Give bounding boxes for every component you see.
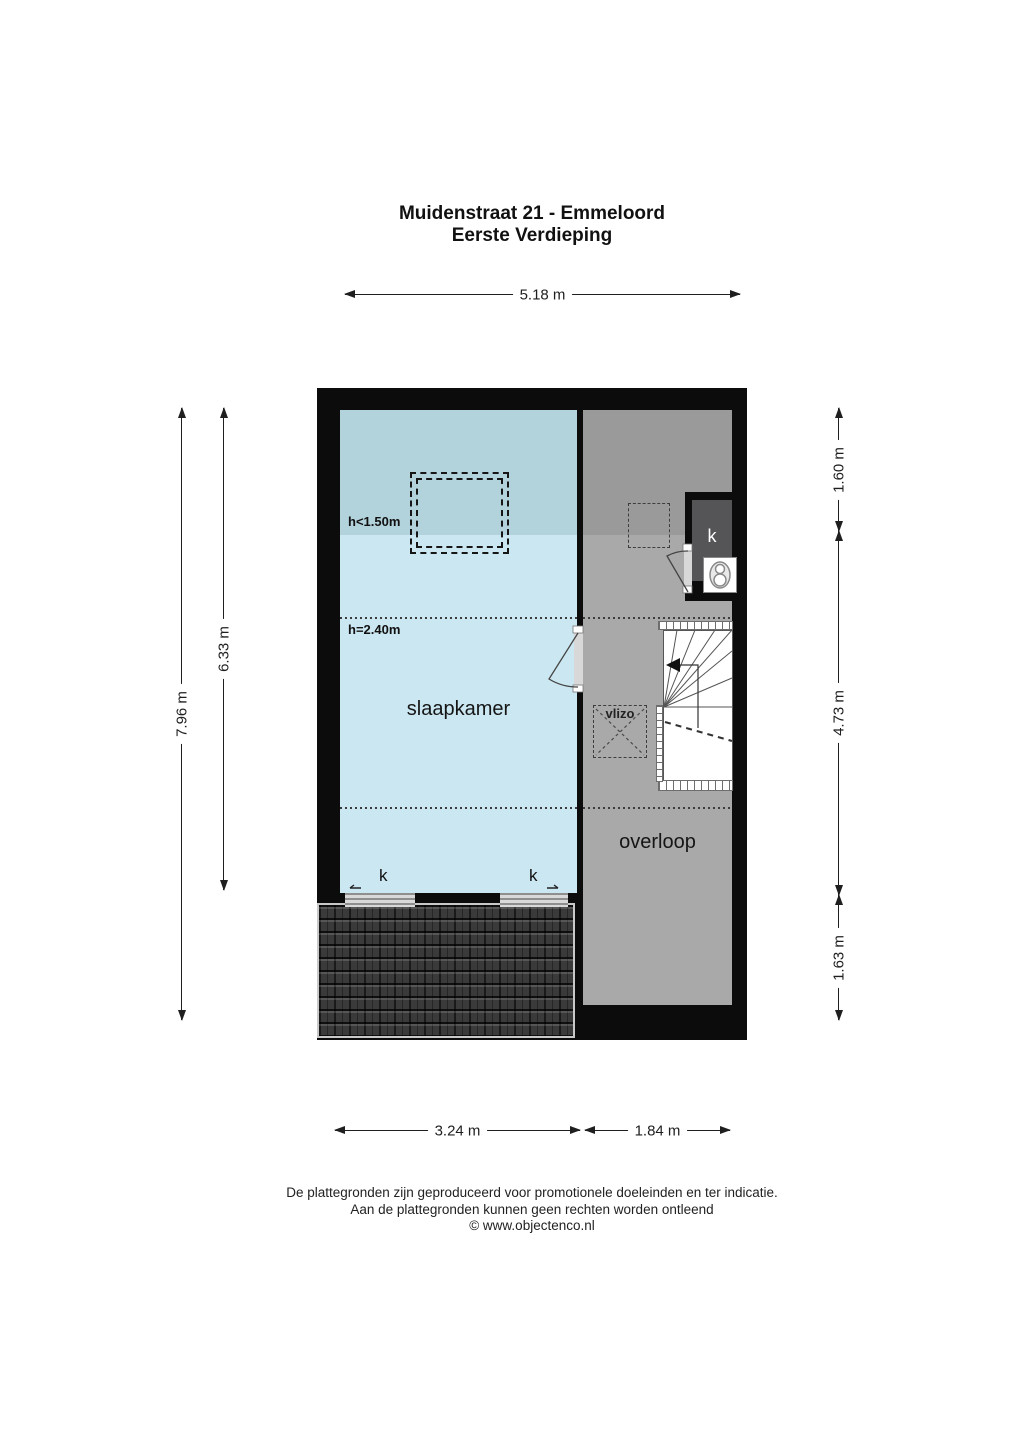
window-right-label: k [529, 866, 538, 886]
title-floor: Eerste Verdieping [257, 225, 807, 247]
room-label-overloop: overloop [583, 831, 732, 854]
roof-window-right [500, 893, 568, 907]
height-label-main: h=2.40m [348, 622, 400, 637]
ceiling-slope-line-landing [583, 807, 732, 809]
footer-disclaimer: De plattegronden zijn geproduceerd voor … [159, 1185, 905, 1235]
dimension-right-middle: 4.73 m [838, 531, 839, 895]
roof-tiles [317, 903, 575, 1038]
dimension-right-bottom: 1.63 m [838, 895, 839, 1020]
staircase [663, 630, 733, 782]
floorplan-page: Muidenstraat 21 - Emmeloord Eerste Verdi… [0, 0, 1018, 1440]
arrow-down-icon [835, 1010, 843, 1021]
arrow-up-icon [835, 894, 843, 905]
dimension-label: 1.84 m [628, 1123, 688, 1140]
dimension-label: 4.73 m [831, 683, 848, 743]
title-address: Muidenstraat 21 - Emmeloord [257, 203, 807, 225]
arrow-left-icon [344, 290, 355, 298]
height-label-low: h<1.50m [348, 514, 400, 529]
dimension-label: 7.96 m [174, 684, 191, 744]
height-line-240-landing [583, 617, 732, 619]
height-line-240 [340, 617, 577, 619]
footer-line-2: Aan de plattegronden kunnen geen rechten… [159, 1202, 905, 1219]
arrow-down-icon [220, 880, 228, 891]
dimension-right-top: 1.60 m [838, 408, 839, 531]
dimension-label: 1.63 m [831, 928, 848, 988]
stair-rail-top [658, 621, 733, 630]
ceiling-slope-line-bedroom [340, 807, 577, 809]
dashed-roof-opening [410, 472, 509, 554]
stair-rail-left [656, 705, 663, 782]
arrow-up-icon [178, 407, 186, 418]
closet-label: k [692, 526, 732, 547]
arrow-right-icon [570, 1126, 581, 1134]
dimension-label: 1.60 m [831, 440, 848, 500]
dimension-label: 5.18 m [513, 287, 573, 304]
arrow-left-icon [584, 1126, 595, 1134]
dashed-roof-window-landing [628, 503, 670, 548]
page-title: Muidenstraat 21 - Emmeloord Eerste Verdi… [257, 203, 807, 247]
window-left-label: k [379, 866, 388, 886]
dimension-bottom-left: 3.24 m [335, 1130, 580, 1131]
arrow-up-icon [835, 530, 843, 541]
dimension-top-width: 5.18 m [345, 294, 740, 295]
dashed-roof-opening-inner [416, 478, 503, 548]
boiler-unit [703, 557, 737, 593]
vlizo-label: vlizo [593, 706, 647, 721]
arrow-right-icon [730, 290, 741, 298]
arrow-up-icon [835, 407, 843, 418]
arrow-left-icon [334, 1126, 345, 1134]
arrow-down-icon [178, 1010, 186, 1021]
footer-line-1: De plattegronden zijn geproduceerd voor … [159, 1185, 905, 1202]
dimension-bottom-right: 1.84 m [585, 1130, 730, 1131]
floorplan: h<1.50m h=2.40m slaapkamer overloop vliz… [317, 388, 747, 1040]
arrow-up-icon [220, 407, 228, 418]
dimension-left-inner: 6.33 m [223, 408, 224, 890]
stair-rail-bottom [658, 780, 733, 791]
room-label-slaapkamer: slaapkamer [340, 698, 577, 721]
dimension-label: 3.24 m [428, 1123, 488, 1140]
roof-window-left [345, 893, 415, 907]
dimension-label: 6.33 m [216, 619, 233, 679]
dimension-left-outer: 7.96 m [181, 408, 182, 1020]
arrow-right-icon [720, 1126, 731, 1134]
footer-line-3: © www.objectenco.nl [159, 1218, 905, 1235]
